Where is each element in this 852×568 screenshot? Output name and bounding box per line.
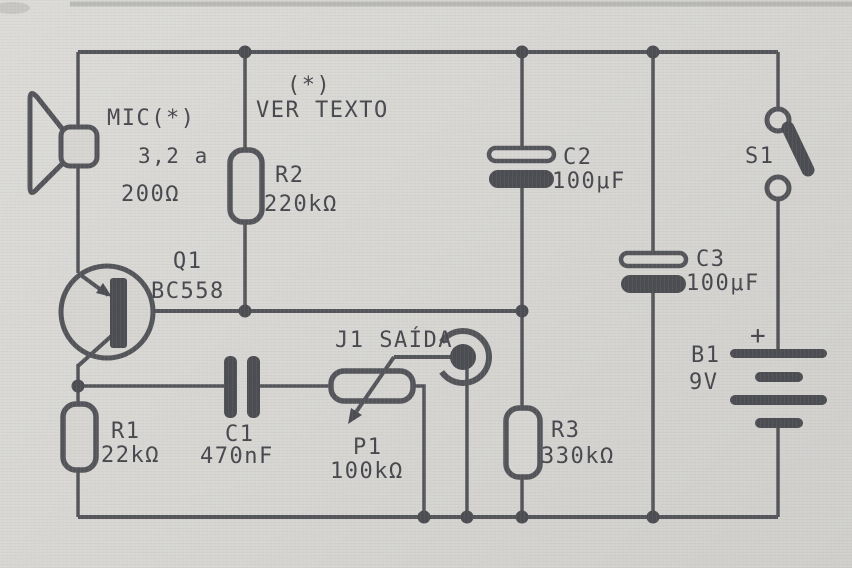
transistor-q1-symbol: [61, 266, 153, 366]
junction-dot: [239, 46, 252, 59]
junction-dot: [516, 511, 529, 524]
label-p1-value: 100kΩ: [330, 459, 404, 484]
schematic-canvas: MIC(*) 3,2 a 200Ω (*) VER TEXTO Q1 BC558…: [0, 0, 852, 568]
c2-plate-top: [489, 148, 554, 161]
resistor-r1-symbol: [63, 404, 96, 470]
label-q1-value: BC558: [151, 279, 225, 304]
capacitor-c2-symbol: [489, 148, 554, 188]
c3-plate-top: [621, 253, 686, 266]
switch-contact-bottom: [767, 177, 789, 199]
battery-plate-long-1: [730, 349, 827, 358]
label-r3-value: 330kΩ: [541, 444, 615, 469]
c1-plate-left: [224, 356, 237, 418]
junction-dot: [647, 511, 660, 524]
capacitor-c3-symbol: [621, 253, 686, 293]
label-c1-value: 470nF: [200, 444, 274, 469]
c2-plate-bottom: [489, 170, 554, 188]
label-see-text: VER TEXTO: [256, 98, 389, 123]
battery-b1-symbol: [730, 349, 827, 428]
label-c2-value: 100μF: [552, 169, 626, 194]
label-s1-ref: S1: [745, 144, 775, 169]
resistor-r2-symbol: [230, 150, 262, 222]
label-c2-ref: C2: [563, 145, 593, 170]
switch-lever: [788, 128, 808, 170]
label-p1-ref: P1: [353, 435, 383, 460]
label-mic-range-from: 3,2 a: [138, 144, 209, 168]
label-j1-ref: J1 SAÍDA: [335, 327, 453, 353]
junction-dot: [418, 511, 431, 524]
label-c3-value: 100μF: [686, 271, 760, 296]
battery-plate-short-1: [755, 372, 803, 382]
scan-artifacts: [0, 2, 852, 14]
battery-plate-long-2: [730, 395, 827, 405]
junction-dot: [516, 305, 529, 318]
c3-plate-bottom: [621, 275, 686, 293]
label-b1-value: 9V: [689, 370, 719, 395]
label-b1-polarity: +: [750, 321, 767, 351]
scan-smudge: [0, 2, 30, 14]
label-r3-ref: R3: [551, 418, 581, 443]
schematic-figure: MIC(*) 3,2 a 200Ω (*) VER TEXTO Q1 BC558…: [0, 0, 852, 568]
label-mic-range-to: 200Ω: [121, 182, 180, 207]
transistor-base-bar: [110, 278, 127, 348]
junction-dot: [647, 46, 660, 59]
label-r1-value: 22kΩ: [101, 443, 160, 468]
wire-p1-ground: [412, 386, 424, 517]
label-r2-ref: R2: [275, 163, 305, 188]
capacitor-c1-symbol: [224, 356, 260, 418]
jack-tip-dot: [450, 344, 476, 370]
label-r2-value: 220kΩ: [264, 192, 338, 217]
transistor-circle: [61, 266, 153, 358]
junction-dot: [72, 380, 85, 393]
potentiometer-p1-symbol: [331, 357, 413, 424]
mic-body: [61, 127, 97, 166]
junction-dot: [461, 511, 474, 524]
label-r1-ref: R1: [111, 419, 141, 444]
label-asterisk-note: (*): [287, 73, 331, 98]
label-b1-ref: B1: [691, 343, 721, 368]
label-q1-ref: Q1: [173, 249, 203, 274]
junction-dot: [239, 305, 252, 318]
battery-plate-short-2: [755, 418, 803, 428]
c1-plate-right: [247, 356, 260, 418]
mic-symbol: [30, 93, 97, 192]
resistor-r3-symbol: [506, 408, 540, 477]
label-mic-ref: MIC(*): [107, 106, 195, 131]
label-c3-ref: C3: [696, 247, 726, 272]
junction-dot: [516, 46, 529, 59]
